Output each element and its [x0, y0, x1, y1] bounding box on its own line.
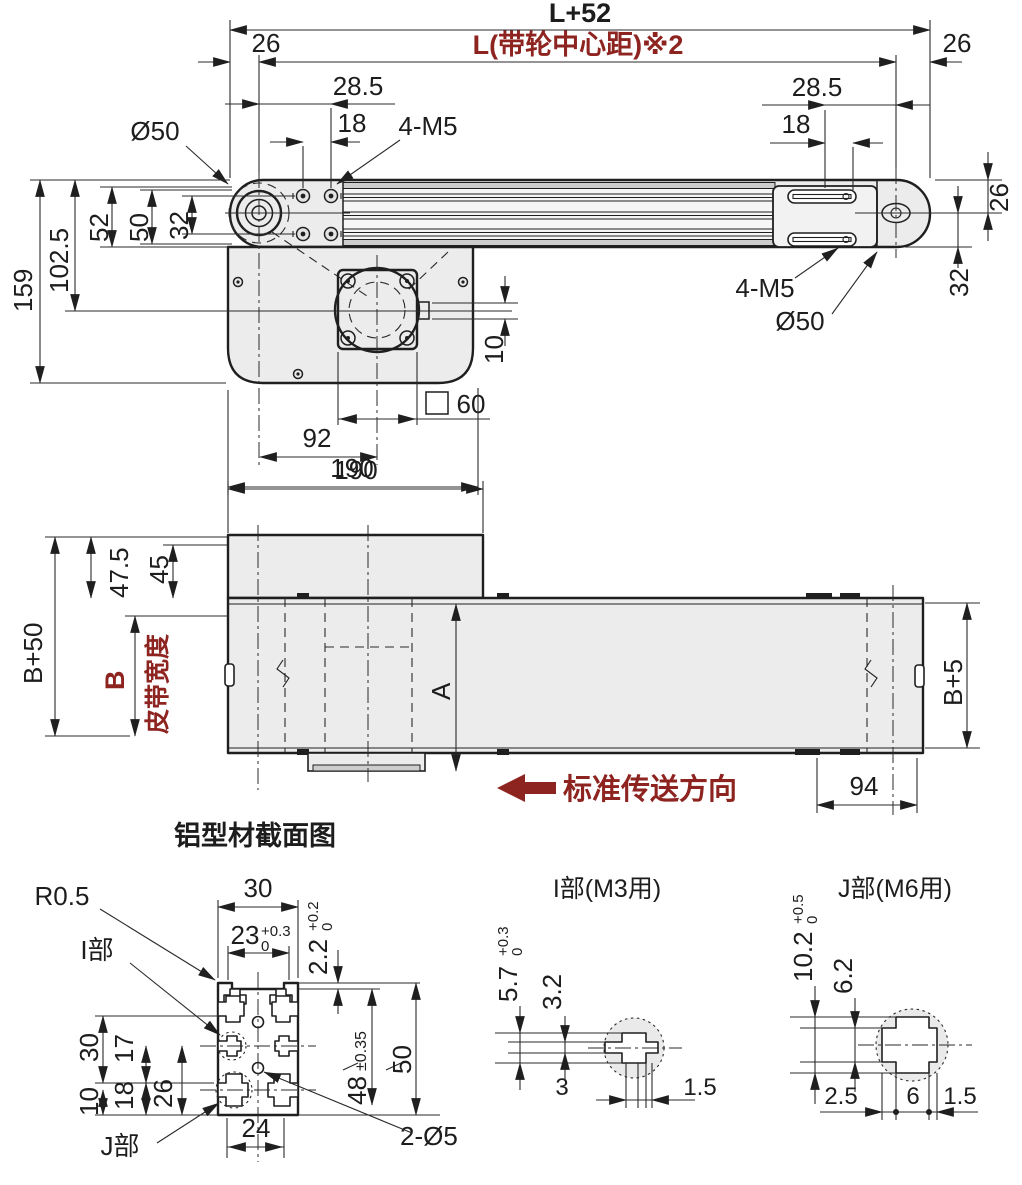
- belt-bottom-band: [343, 240, 775, 246]
- dim-b5: B+5: [938, 659, 968, 706]
- engineering-drawing-page: L+52 L(带轮中心距)※2 26 26 28.5 18 4-M5 Ø50: [0, 0, 1022, 1185]
- side-view: 190 47.5 45 B+50 B 皮带宽度 A B+5: [18, 455, 980, 815]
- direction-arrow-icon: [497, 774, 556, 802]
- dim-32-vert-right: 32: [944, 268, 974, 297]
- belt-top-band: [343, 183, 775, 189]
- dim-26-right: 26: [943, 28, 972, 58]
- dim-24: 24: [242, 1113, 271, 1143]
- dim-10: 10: [479, 335, 509, 364]
- dim-18-left: 18: [338, 108, 367, 138]
- dim-26: 26: [148, 1079, 178, 1108]
- profile-section: 铝型材截面图 30 23 +0.3: [35, 821, 458, 1162]
- dim-32-detail: 3.2: [537, 974, 567, 1010]
- dim-48-base: 48: [342, 1076, 372, 1105]
- section-title: 铝型材截面图: [174, 821, 336, 851]
- label-4m5-left: 4-M5: [398, 111, 457, 141]
- dim-285-left: 28.5: [333, 71, 384, 101]
- detail-j: J部(M6用) 10.2 +0.5 0 6.2: [788, 875, 978, 1120]
- drive-box: [228, 535, 483, 598]
- dim-22-tol-dn: 0: [319, 923, 336, 931]
- conveyor-drawing: L+52 L(带轮中心距)※2 26 26 28.5 18 4-M5 Ø50: [0, 0, 1022, 1185]
- dim-48-tol: ±0.35: [353, 1031, 370, 1071]
- left-clip: [225, 664, 234, 686]
- label-d50-left: Ø50: [130, 116, 179, 146]
- dim-23-base: 23: [231, 920, 260, 950]
- dim-285-right: 28.5: [792, 72, 843, 102]
- dim-1025: 102.5: [44, 228, 74, 293]
- dim-6: 6: [906, 1083, 919, 1110]
- dim-52: 52: [84, 213, 114, 242]
- dim-30-top: 30: [244, 873, 273, 903]
- motor-housing: [228, 247, 473, 383]
- dim-18-right: 18: [782, 109, 811, 139]
- dim-pulley-centers-label: L(带轮中心距)※2: [473, 30, 684, 60]
- dim-50: 50: [124, 213, 154, 242]
- dim-22-base: 2.2: [303, 939, 333, 975]
- dim-a: A: [426, 682, 456, 700]
- dim-b-note: 皮带宽度: [143, 634, 172, 734]
- label-j: J部: [100, 1131, 139, 1161]
- dim-3: 3: [555, 1074, 568, 1101]
- dim-102-tol-dn: 0: [804, 916, 821, 924]
- top-view: L+52 L(带轮中心距)※2 26 26 28.5 18 4-M5 Ø50: [8, 0, 1014, 495]
- dim-102-base: 10.2: [788, 931, 818, 982]
- dim-159: 159: [8, 269, 38, 312]
- dim-18: 18: [109, 1081, 139, 1110]
- dims-section: 30 23 +0.3 0 2.2 +0.2 0 48 ±0.: [35, 873, 458, 1161]
- dim-b: B: [100, 671, 130, 691]
- dim-50-right: 50: [387, 1045, 417, 1074]
- detail-j-title: J部(M6用): [838, 875, 952, 903]
- dim-26-vert-right: 26: [984, 183, 1014, 212]
- side-slot-left-upper: [218, 996, 244, 1022]
- dim-25: 2.5: [824, 1083, 857, 1110]
- detail-i-title: I部(M3用): [553, 875, 661, 903]
- dim-overall-label: L+52: [549, 0, 611, 28]
- dim-92: 92: [303, 423, 332, 453]
- label-r05: R0.5: [35, 881, 90, 911]
- dim-26-left: 26: [252, 28, 281, 58]
- square-symbol: [426, 392, 448, 414]
- right-clip: [915, 665, 924, 687]
- label-2d5: 2-Ø5: [400, 1121, 458, 1151]
- dim-57-tol-dn: 0: [509, 948, 526, 956]
- dim-b50: B+50: [18, 623, 48, 684]
- tail-tension-plate: [773, 181, 877, 247]
- rail-body: [228, 598, 923, 753]
- dim-32: 32: [164, 211, 194, 240]
- dim-30-left: 30: [74, 1033, 104, 1062]
- dim-62: 6.2: [828, 958, 858, 994]
- dim-23-tol-dn: 0: [261, 938, 269, 955]
- side-slot-right-upper: [272, 996, 298, 1022]
- dim-45: 45: [144, 555, 174, 584]
- dim-17: 17: [109, 1034, 139, 1063]
- motor-protrusion-band: [313, 765, 420, 771]
- dim-94: 94: [850, 771, 879, 801]
- dim-475: 47.5: [104, 547, 134, 598]
- dim-57-base: 5.7: [493, 966, 523, 1002]
- label-4m5-right: 4-M5: [735, 273, 794, 303]
- detail-i: I部(M3用) 5.7 +0.3 0 3.2 3: [493, 875, 717, 1108]
- dim-60: 60: [457, 389, 486, 419]
- label-i: I部: [80, 935, 113, 965]
- direction-note: 标准传送方向: [563, 772, 737, 806]
- label-d50-right: Ø50: [775, 306, 824, 336]
- dim-190-side: 190: [334, 455, 377, 485]
- dim-15-j: 1.5: [943, 1083, 976, 1110]
- dim-10-left: 10: [74, 1087, 104, 1116]
- direction-indicator: 标准传送方向: [497, 772, 737, 806]
- dim-15-i: 1.5: [683, 1074, 716, 1101]
